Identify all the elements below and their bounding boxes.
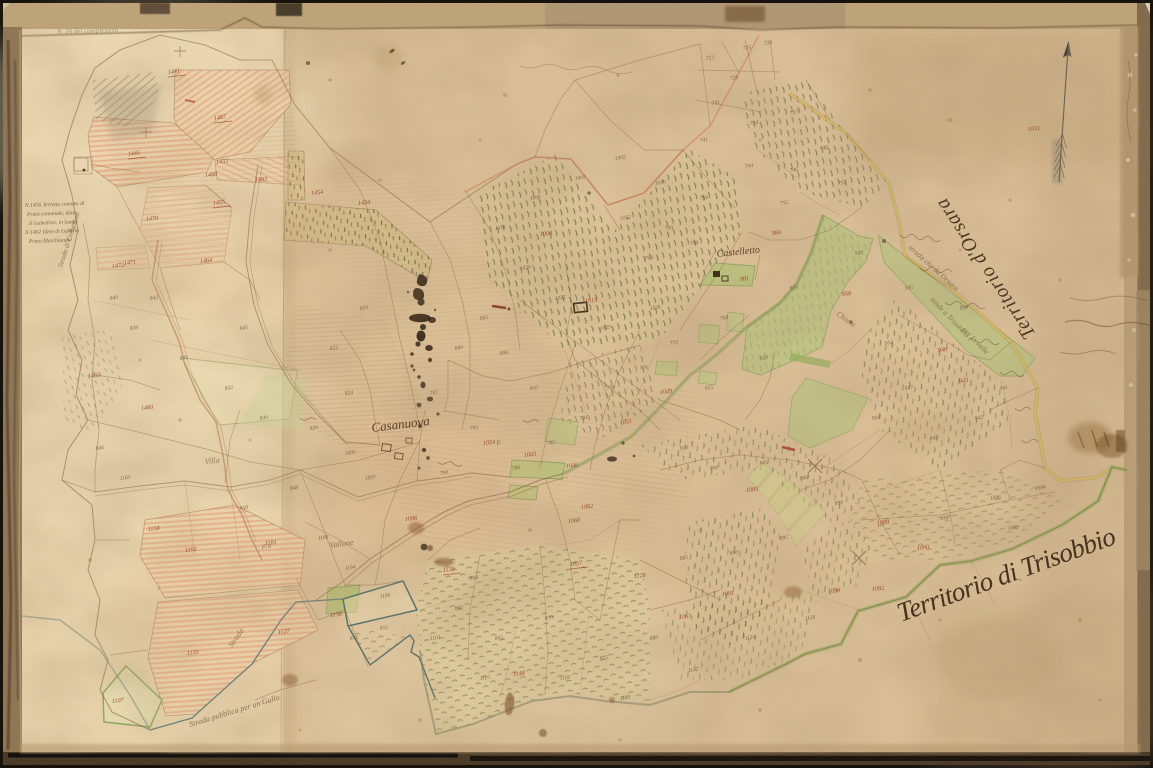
svg-text:835: 835	[179, 355, 188, 362]
svg-text:935: 935	[904, 285, 913, 292]
svg-text:1085: 1085	[745, 486, 758, 494]
svg-text:1138: 1138	[329, 611, 342, 619]
svg-text:830: 830	[259, 415, 268, 422]
svg-text:895: 895	[779, 535, 788, 542]
svg-text:1063: 1063	[678, 613, 691, 621]
svg-text:824: 824	[344, 389, 353, 397]
svg-text:1094: 1094	[827, 587, 840, 595]
svg-text:858: 858	[469, 575, 478, 582]
svg-text:1101: 1101	[264, 539, 277, 547]
svg-text:885: 885	[679, 555, 688, 562]
svg-text:1046: 1046	[565, 462, 579, 470]
svg-text:846: 846	[95, 444, 104, 452]
svg-text:1031: 1031	[1027, 125, 1040, 133]
svg-text:1008: 1008	[539, 230, 553, 238]
svg-text:981: 981	[739, 275, 749, 283]
svg-text:1091: 1091	[721, 590, 734, 598]
svg-text:744: 744	[744, 162, 753, 170]
svg-text:793: 793	[469, 425, 478, 432]
svg-text:1460: 1460	[140, 404, 154, 412]
svg-text:785: 785	[546, 440, 555, 447]
svg-text:850: 850	[239, 505, 248, 512]
svg-text:852: 852	[349, 635, 358, 642]
svg-text:1062: 1062	[580, 503, 593, 511]
svg-text:728: 728	[729, 75, 738, 82]
svg-text:764: 764	[689, 239, 698, 247]
svg-text:845: 845	[239, 324, 248, 332]
svg-text:920: 920	[759, 355, 768, 362]
svg-text:1049: 1049	[659, 388, 672, 396]
svg-text:848: 848	[289, 484, 298, 492]
svg-text:875: 875	[599, 655, 608, 662]
svg-text:1433: 1433	[215, 158, 228, 166]
svg-text:942: 942	[974, 414, 983, 422]
svg-text:910: 910	[679, 445, 688, 452]
svg-text:905: 905	[759, 460, 768, 467]
svg-text:1090: 1090	[916, 544, 930, 552]
svg-text:838: 838	[129, 325, 138, 332]
svg-text:768: 768	[719, 315, 728, 322]
svg-text:925: 925	[789, 285, 798, 292]
svg-text:908: 908	[709, 465, 718, 472]
svg-text:Villa: Villa	[204, 455, 220, 466]
svg-text:840: 840	[109, 294, 118, 302]
svg-text:737: 737	[789, 110, 798, 117]
svg-text:984: 984	[771, 229, 781, 237]
svg-text:748: 748	[819, 144, 828, 152]
svg-text:1043: 1043	[523, 451, 536, 459]
svg-text:1483: 1483	[254, 176, 267, 184]
svg-text:1464: 1464	[199, 257, 212, 265]
svg-text:805: 805	[479, 315, 488, 322]
svg-text:790: 790	[439, 470, 448, 477]
svg-text:940: 940	[937, 346, 948, 354]
svg-text:1470: 1470	[145, 215, 159, 223]
svg-text:890: 890	[729, 550, 738, 557]
svg-text:781: 781	[579, 415, 588, 422]
svg-text:842: 842	[149, 294, 158, 302]
svg-text:1057: 1057	[569, 560, 583, 568]
svg-text:810: 810	[529, 385, 538, 392]
svg-text:1465: 1465	[87, 372, 100, 380]
svg-text:731: 731	[711, 100, 720, 107]
svg-text:734: 734	[749, 119, 758, 127]
svg-text:755: 755	[779, 200, 788, 207]
svg-text:1471: 1471	[123, 259, 136, 267]
svg-text:726: 726	[763, 40, 772, 47]
svg-text:1434: 1434	[357, 199, 370, 207]
svg-text:1158: 1158	[147, 525, 160, 533]
svg-text:1127: 1127	[277, 628, 290, 636]
svg-text:1102: 1102	[184, 546, 197, 554]
svg-text:930: 930	[854, 250, 863, 257]
svg-text:1128: 1128	[633, 572, 646, 580]
svg-text:865: 865	[494, 635, 503, 642]
svg-text:758: 758	[699, 195, 708, 202]
svg-text:778: 778	[606, 385, 615, 392]
svg-text:725: 725	[742, 45, 751, 52]
svg-text:1454: 1454	[310, 189, 323, 197]
svg-text:1488: 1488	[204, 171, 218, 179]
svg-text:822: 822	[329, 345, 338, 352]
svg-text:1472: 1472	[111, 262, 124, 270]
svg-text:776: 776	[639, 365, 648, 372]
svg-text:1015: 1015	[584, 297, 597, 305]
svg-text:950: 950	[871, 415, 880, 422]
svg-text:800: 800	[454, 345, 463, 352]
svg-text:870: 870	[544, 615, 553, 622]
svg-text:915: 915	[704, 385, 713, 392]
svg-text:772: 772	[669, 340, 678, 347]
svg-text:943: 943	[958, 377, 968, 385]
svg-text:900: 900	[799, 475, 808, 482]
svg-text:1148: 1148	[512, 670, 525, 678]
svg-text:832: 832	[224, 385, 233, 392]
svg-text:820: 820	[359, 305, 368, 312]
svg-text:860: 860	[454, 605, 463, 612]
svg-text:1092: 1092	[871, 585, 884, 593]
svg-text:945: 945	[929, 434, 938, 442]
svg-text:1060: 1060	[567, 517, 581, 525]
svg-text:763: 763	[644, 255, 653, 262]
svg-text:941: 941	[999, 384, 1008, 392]
svg-text:1051: 1051	[619, 418, 632, 426]
svg-text:746: 746	[789, 166, 798, 174]
svg-text:1455: 1455	[212, 199, 225, 207]
svg-text:723: 723	[705, 55, 714, 62]
svg-text:1135: 1135	[186, 649, 199, 657]
svg-text:958: 958	[841, 290, 852, 298]
svg-text:1139: 1139	[442, 566, 455, 574]
svg-text:1096: 1096	[404, 515, 418, 523]
svg-text:826: 826	[309, 425, 318, 432]
svg-text:880: 880	[649, 635, 658, 642]
svg-text:797: 797	[429, 390, 438, 397]
svg-text:788: 788	[511, 465, 520, 472]
svg-text:855: 855	[379, 625, 388, 632]
svg-text:1107: 1107	[111, 697, 124, 705]
svg-text:741: 741	[699, 136, 708, 144]
svg-text:898: 898	[834, 500, 843, 507]
svg-text:1089: 1089	[876, 519, 889, 527]
svg-text:752: 752	[837, 180, 846, 187]
svg-text:952: 952	[884, 340, 893, 347]
svg-text:947: 947	[904, 384, 913, 392]
svg-text:806: 806	[499, 350, 508, 357]
svg-text:760: 760	[664, 225, 673, 232]
